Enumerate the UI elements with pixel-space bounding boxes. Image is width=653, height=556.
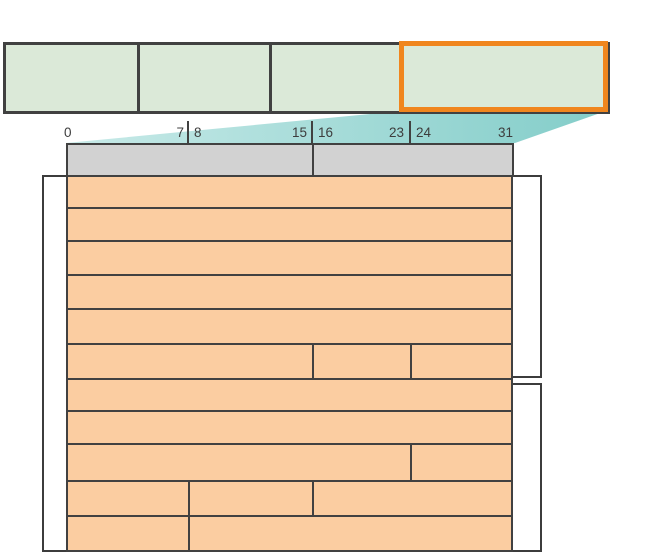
field-cell-row7-bits0-31 xyxy=(66,378,513,412)
bit-label-31: 31 xyxy=(498,126,513,140)
frame-segment-1 xyxy=(3,42,140,114)
field-cell-row5-bits0-31 xyxy=(66,308,513,345)
frame-segment-3 xyxy=(269,42,402,114)
bit-tick-1 xyxy=(187,121,189,143)
right-span-bracket-bottom xyxy=(511,383,542,552)
field-cell-row9-bits24-31 xyxy=(410,443,513,482)
word-header-cell-1 xyxy=(66,143,314,177)
field-cell-row6-bits24-31 xyxy=(410,343,513,380)
frame-segment-2 xyxy=(137,42,272,114)
right-span-bracket-top xyxy=(511,175,542,378)
bit-tick-2 xyxy=(311,121,313,143)
field-cell-row11-bits8-31 xyxy=(188,515,513,552)
bit-tick-3 xyxy=(409,121,411,143)
field-cell-row10-bits8-15 xyxy=(188,480,314,517)
field-cell-row9-bits0-23 xyxy=(66,443,412,482)
word-header-cell-2 xyxy=(312,143,514,177)
zoom-callout-wedge xyxy=(66,111,606,143)
bit-label-0: 0 xyxy=(64,126,72,140)
field-cell-row2-bits0-31 xyxy=(66,207,513,242)
bit-label-16: 16 xyxy=(318,126,333,140)
field-cell-row4-bits0-31 xyxy=(66,274,513,310)
field-cell-row11-bits0-7 xyxy=(66,515,190,552)
field-cell-row8-bits0-31 xyxy=(66,410,513,445)
bit-label-24: 24 xyxy=(416,126,431,140)
bit-label-8: 8 xyxy=(194,126,202,140)
field-cell-row3-bits0-31 xyxy=(66,240,513,276)
field-cell-row10-bits0-7 xyxy=(66,480,190,517)
field-cell-row6-bits16-23 xyxy=(312,343,412,380)
left-span-bracket xyxy=(42,175,68,552)
bit-label-15: 15 xyxy=(292,126,307,140)
bit-label-23: 23 xyxy=(389,126,404,140)
highlighted-frame-segment-border xyxy=(399,41,608,112)
packet-structure-diagram: 0781516232431 xyxy=(0,0,653,556)
bit-label-7: 7 xyxy=(176,126,184,140)
field-cell-row10-bits16-31 xyxy=(312,480,513,517)
field-cell-row1-bits0-31 xyxy=(66,175,513,209)
field-cell-row6-bits0-15 xyxy=(66,343,314,380)
